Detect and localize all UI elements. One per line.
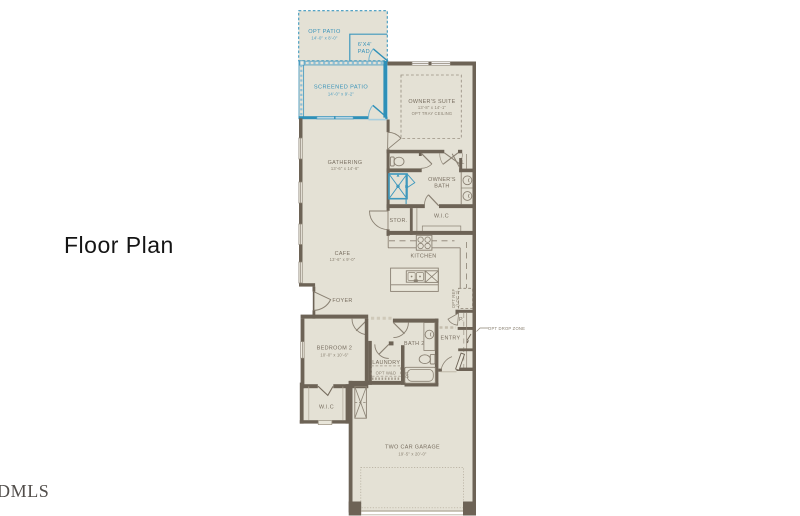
svg-text:BATH: BATH <box>434 184 449 190</box>
svg-text:OPT PATIO: OPT PATIO <box>308 29 341 35</box>
svg-text:(LOC 2): (LOC 2) <box>455 290 460 307</box>
svg-text:PAD: PAD <box>358 49 370 55</box>
svg-text:P.: P. <box>459 317 464 323</box>
svg-text:13'-6" x 14'-6": 13'-6" x 14'-6" <box>331 166 360 171</box>
svg-text:ENTRY: ENTRY <box>441 335 461 341</box>
svg-text:10'-0" x 10'-6": 10'-0" x 10'-6" <box>320 352 349 357</box>
svg-text:OWNER'S: OWNER'S <box>428 177 456 183</box>
svg-text:KITCHEN: KITCHEN <box>410 254 436 260</box>
svg-text:L: L <box>461 160 464 166</box>
svg-text:OPT TRAY CEILING: OPT TRAY CEILING <box>412 111 453 116</box>
svg-text:19'-5" x 20'-0": 19'-5" x 20'-0" <box>398 451 427 456</box>
svg-text:14'-0" x 9'-2": 14'-0" x 9'-2" <box>328 91 355 96</box>
svg-text:LAUNDRY: LAUNDRY <box>372 360 400 366</box>
svg-text:TWO CAR GARAGE: TWO CAR GARAGE <box>385 445 440 451</box>
svg-text:STOR.: STOR. <box>389 218 407 224</box>
svg-text:GATHERING: GATHERING <box>328 160 363 166</box>
svg-text:FOYER: FOYER <box>332 298 352 304</box>
svg-text:BATH 2: BATH 2 <box>404 341 425 347</box>
svg-text:BEDROOM 2: BEDROOM 2 <box>317 346 353 352</box>
svg-text:13'-6" x 9'-0": 13'-6" x 9'-0" <box>330 257 356 262</box>
svg-text:OWNER'S SUITE: OWNER'S SUITE <box>408 99 455 105</box>
svg-text:6'X4': 6'X4' <box>358 42 372 48</box>
svg-text:14'-0" x 8'-0": 14'-0" x 8'-0" <box>311 36 338 41</box>
svg-text:DR: DR <box>404 372 409 378</box>
svg-text:13'-8" x 14'-1": 13'-8" x 14'-1" <box>418 105 447 110</box>
svg-text:OPT W&D: OPT W&D <box>376 370 396 375</box>
svg-text:OPT DROP ZONE: OPT DROP ZONE <box>488 326 525 331</box>
svg-text:W.I.C: W.I.C <box>319 405 334 411</box>
svg-text:SCREENED PATIO: SCREENED PATIO <box>314 85 368 91</box>
svg-text:CAFE: CAFE <box>335 251 351 257</box>
svg-text:W.I.C: W.I.C <box>434 214 449 220</box>
